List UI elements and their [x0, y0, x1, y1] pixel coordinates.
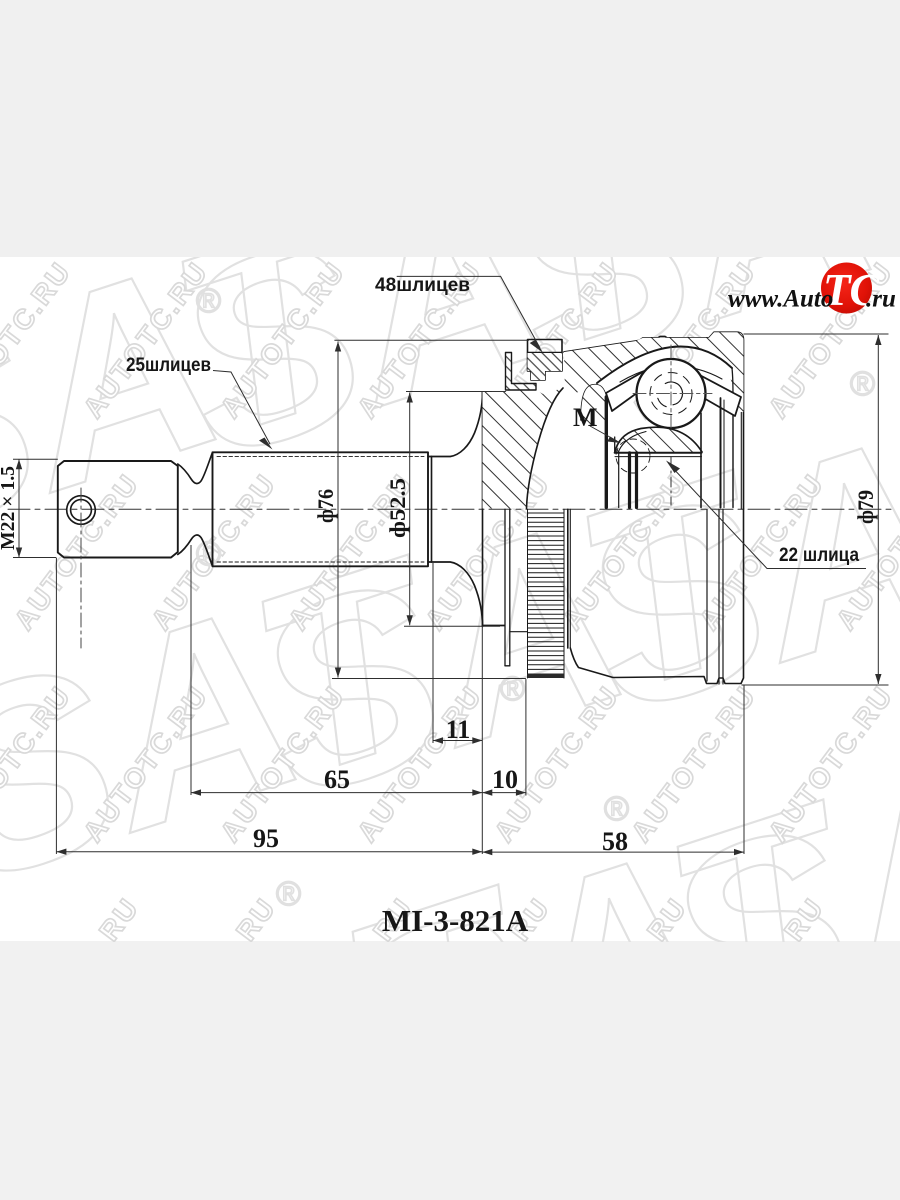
svg-text:www.Auto: www.Auto: [728, 286, 833, 313]
svg-text:MI-3-821A: MI-3-821A: [382, 903, 529, 938]
svg-text:®: ®: [500, 670, 525, 708]
svg-text:ф79: ф79: [853, 490, 878, 524]
svg-text:10: 10: [492, 765, 518, 794]
svg-text:ф52.5: ф52.5: [385, 478, 410, 538]
svg-text:M22 × 1.5: M22 × 1.5: [0, 466, 19, 550]
svg-text:®: ®: [850, 365, 875, 403]
svg-text:ф76: ф76: [313, 489, 338, 523]
svg-text:11: 11: [446, 715, 471, 744]
svg-text:.ru: .ru: [866, 286, 896, 313]
svg-text:®: ®: [604, 790, 629, 828]
svg-text:58: 58: [602, 827, 628, 856]
svg-text:95: 95: [253, 824, 279, 853]
svg-text:®: ®: [196, 282, 221, 320]
svg-text:22 шлица: 22 шлица: [779, 544, 859, 566]
svg-text:M: M: [573, 403, 598, 432]
svg-text:25шлицев: 25шлицев: [126, 354, 211, 376]
svg-text:65: 65: [324, 765, 350, 794]
svg-text:®: ®: [276, 875, 301, 913]
svg-text:48шлицев: 48шлицев: [375, 274, 470, 296]
